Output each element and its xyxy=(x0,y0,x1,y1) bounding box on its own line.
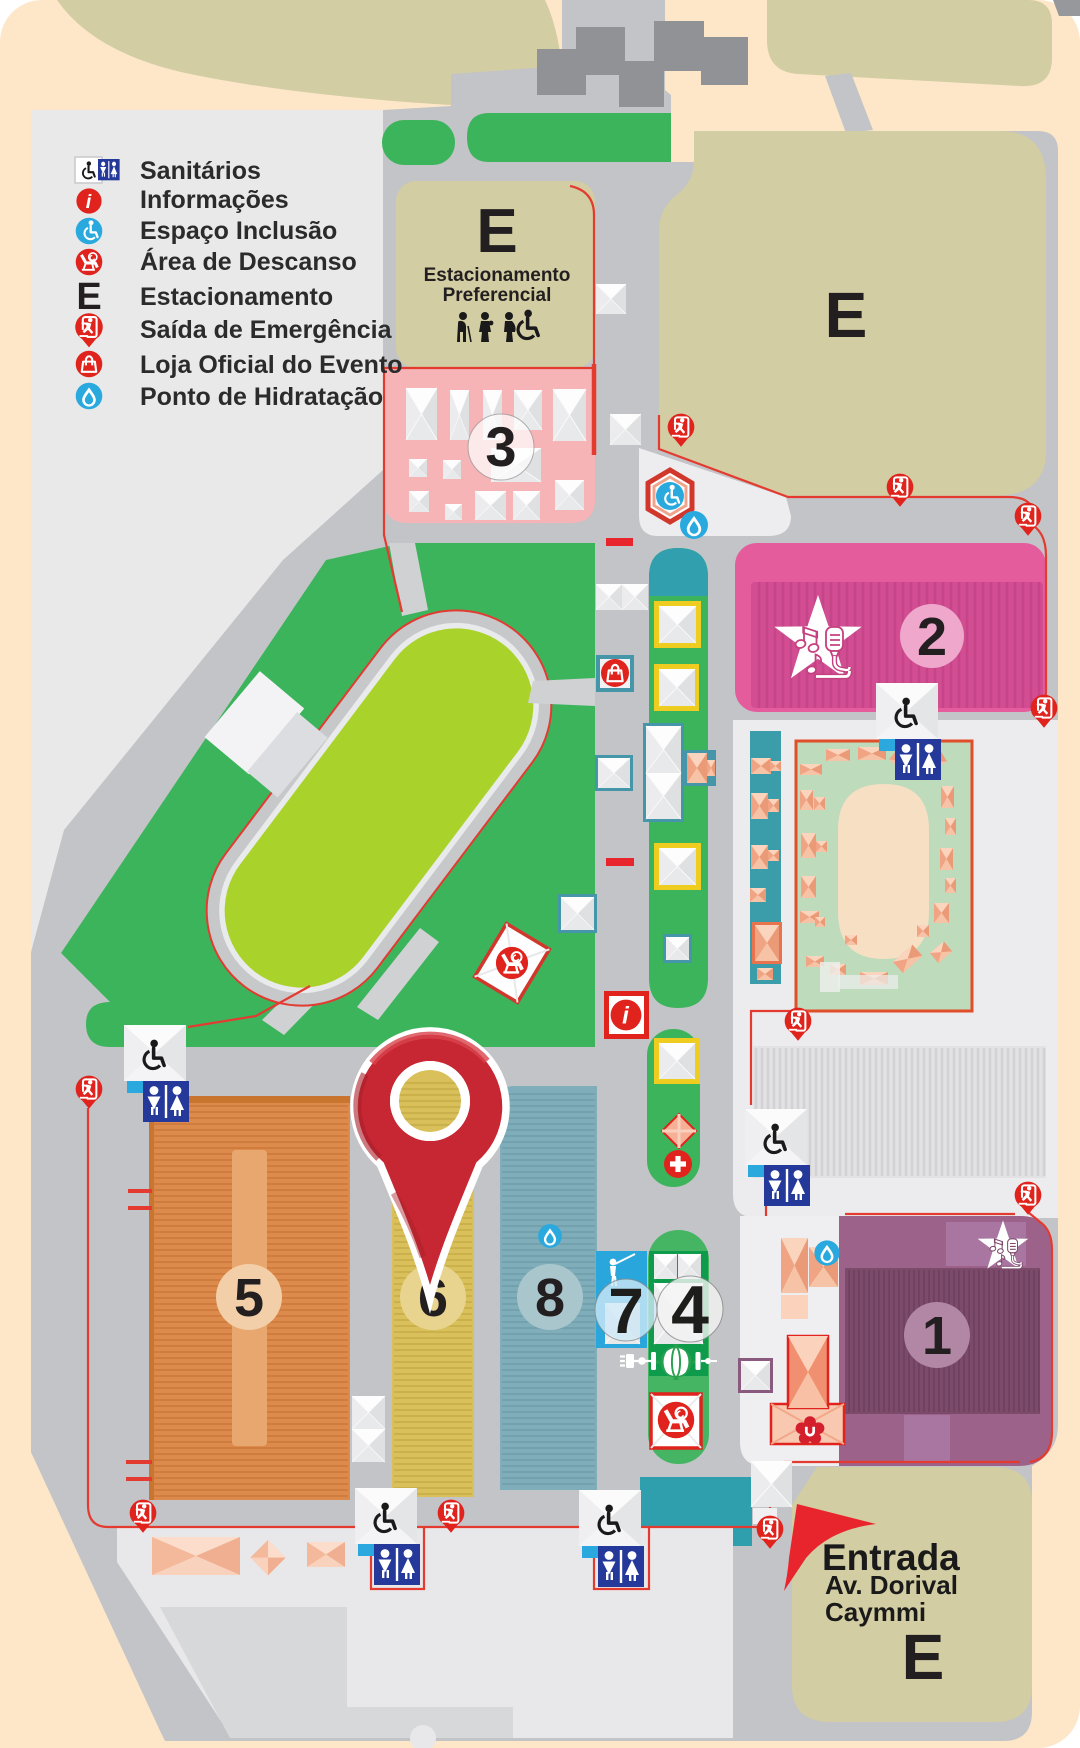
svg-text:Caymmi: Caymmi xyxy=(825,1597,926,1627)
svg-text:5: 5 xyxy=(234,1268,264,1328)
svg-text:E: E xyxy=(825,279,868,351)
svg-text:Estacionamento: Estacionamento xyxy=(424,265,571,286)
svg-text:Espaço Inclusão: Espaço Inclusão xyxy=(140,217,337,245)
svg-text:3: 3 xyxy=(485,415,516,478)
svg-text:Av. Dorival: Av. Dorival xyxy=(825,1570,958,1600)
svg-text:1: 1 xyxy=(922,1306,952,1366)
svg-text:7: 7 xyxy=(608,1275,644,1347)
svg-text:Saída de Emergência: Saída de Emergência xyxy=(140,316,393,344)
svg-text:Informações: Informações xyxy=(140,186,289,214)
svg-text:Ponto de Hidratação: Ponto de Hidratação xyxy=(140,383,383,411)
svg-text:2: 2 xyxy=(917,607,947,667)
svg-text:E: E xyxy=(476,197,517,266)
svg-text:E: E xyxy=(76,276,101,318)
svg-text:E: E xyxy=(902,1621,945,1693)
svg-text:Estacionamento: Estacionamento xyxy=(140,283,333,311)
svg-text:4: 4 xyxy=(671,1272,709,1348)
svg-text:Sanitários: Sanitários xyxy=(140,157,261,185)
svg-text:Loja Oficial do Evento: Loja Oficial do Evento xyxy=(140,351,403,379)
svg-text:Preferencial: Preferencial xyxy=(443,285,552,306)
svg-text:8: 8 xyxy=(535,1268,565,1328)
svg-text:Área de Descanso: Área de Descanso xyxy=(140,247,357,276)
